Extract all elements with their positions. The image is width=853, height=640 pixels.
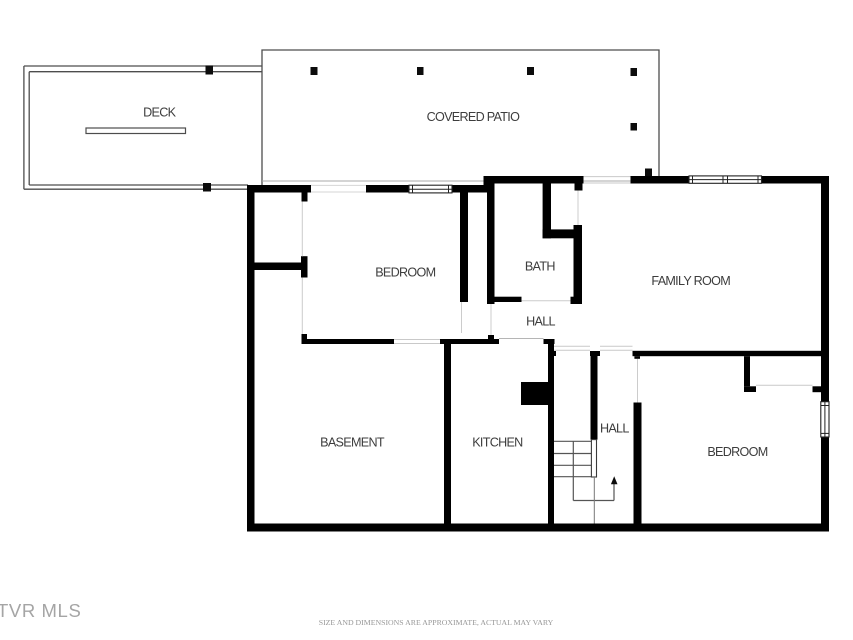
svg-text:HALL: HALL [526,315,555,329]
svg-text:BATH: BATH [525,260,555,274]
svg-text:FAMILY ROOM: FAMILY ROOM [651,274,730,288]
svg-text:BASEMENT: BASEMENT [320,435,385,449]
svg-text:BEDROOM: BEDROOM [707,445,767,459]
svg-text:TVR MLS: TVR MLS [0,600,81,621]
svg-text:BEDROOM: BEDROOM [375,266,435,280]
svg-text:DECK: DECK [143,106,176,120]
svg-text:COVERED PATIO: COVERED PATIO [427,110,521,124]
svg-text:HALL: HALL [600,422,629,436]
svg-text:SIZE AND DIMENSIONS ARE APPROX: SIZE AND DIMENSIONS ARE APPROXIMATE, ACT… [319,618,554,627]
svg-text:KITCHEN: KITCHEN [472,435,523,449]
